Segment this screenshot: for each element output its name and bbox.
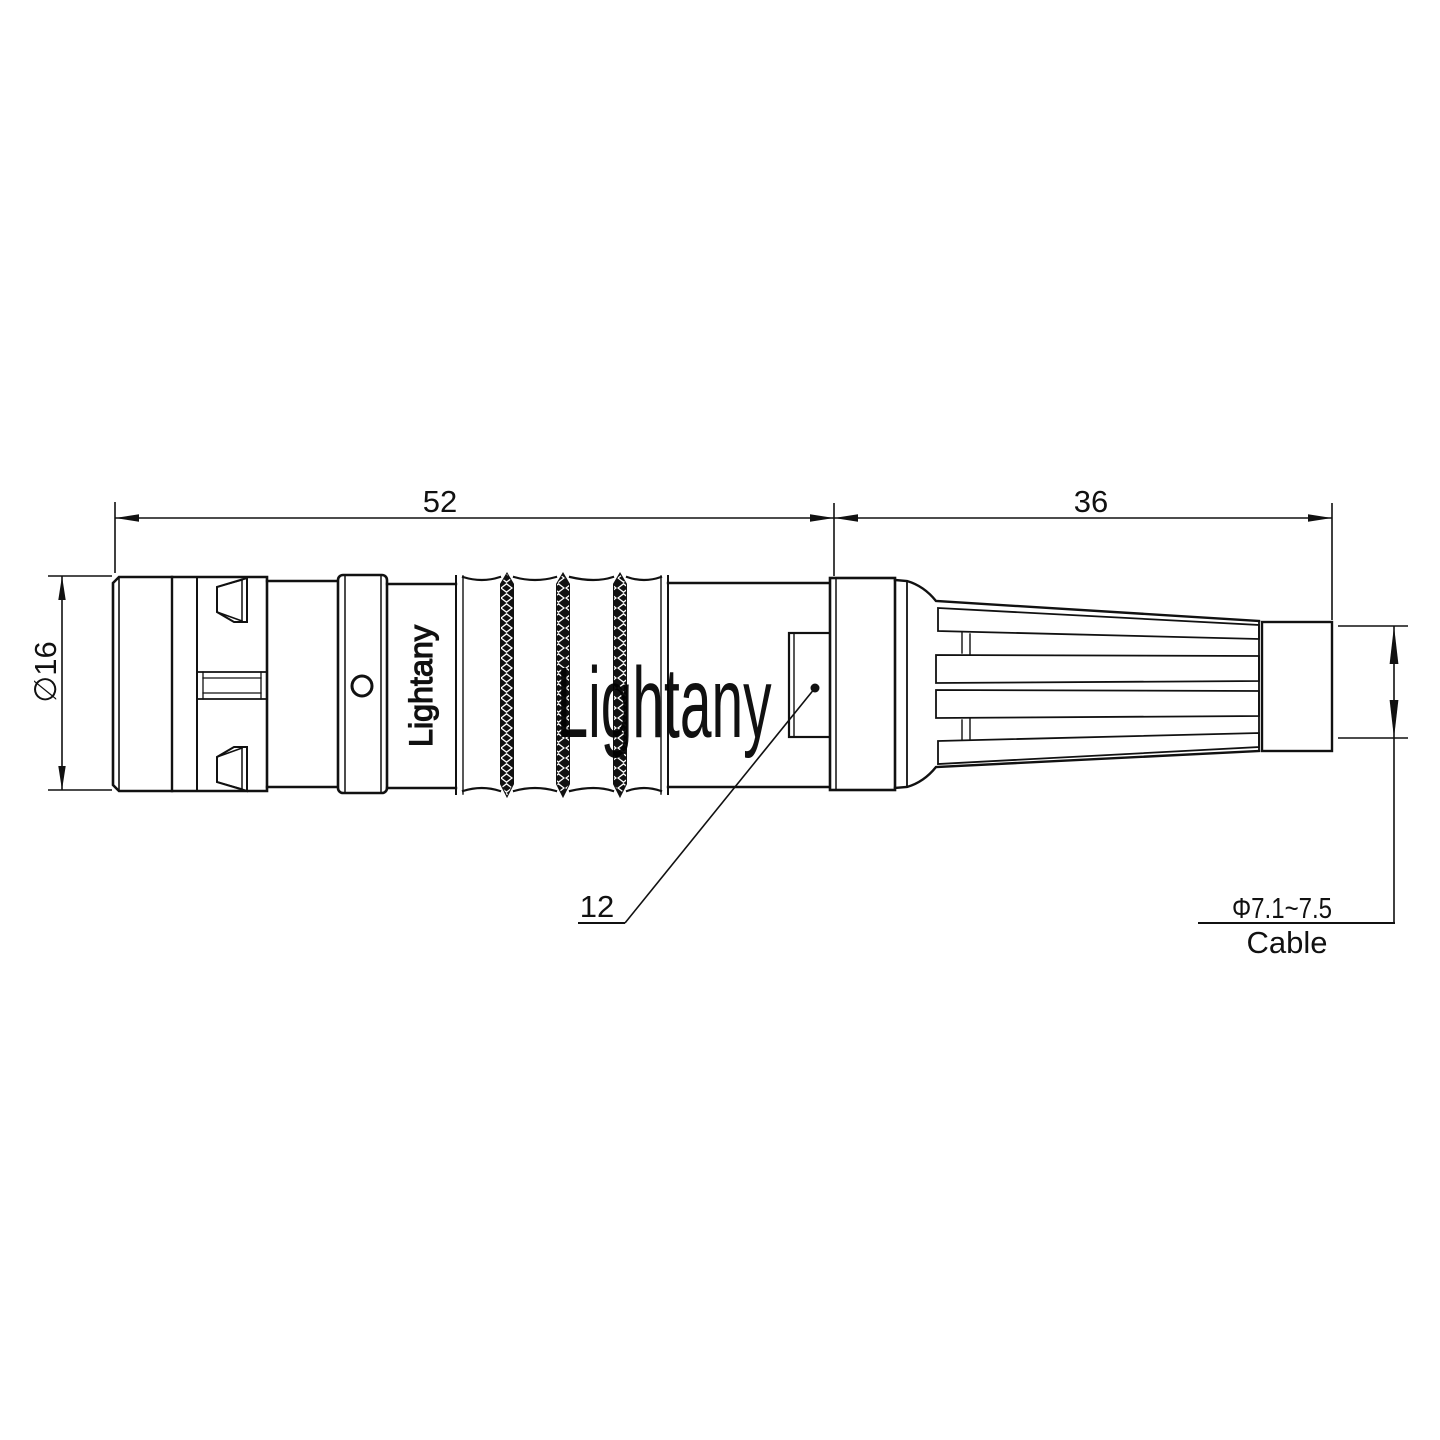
collar-ring [338,575,387,793]
engraved-brand-text: Lightany [403,625,439,747]
boot-rib [936,690,1259,718]
collar-hole [352,676,372,696]
watermark: Lightany [557,647,772,759]
cable-label: Cable [1247,925,1328,960]
dim-label-rear-length: 36 [1074,484,1108,519]
backshell-cap [830,578,907,790]
boot-rib [936,655,1259,683]
technical-drawing-canvas: Lightany Lightany [0,0,1440,1440]
connector-technical-drawing: Lightany Lightany [0,0,1440,1440]
dim-label-key-size: 12 [580,889,614,924]
cable-diameter-label: Φ7.1~7.5 [1232,893,1332,925]
knurl-band [501,573,514,797]
dim-label-front-length: 52 [423,484,457,519]
key-window [789,633,833,737]
watermark-text: Lightany [557,647,772,759]
cable-stub [1262,622,1332,751]
dim-label-body-diameter: ∅16 [28,641,63,703]
